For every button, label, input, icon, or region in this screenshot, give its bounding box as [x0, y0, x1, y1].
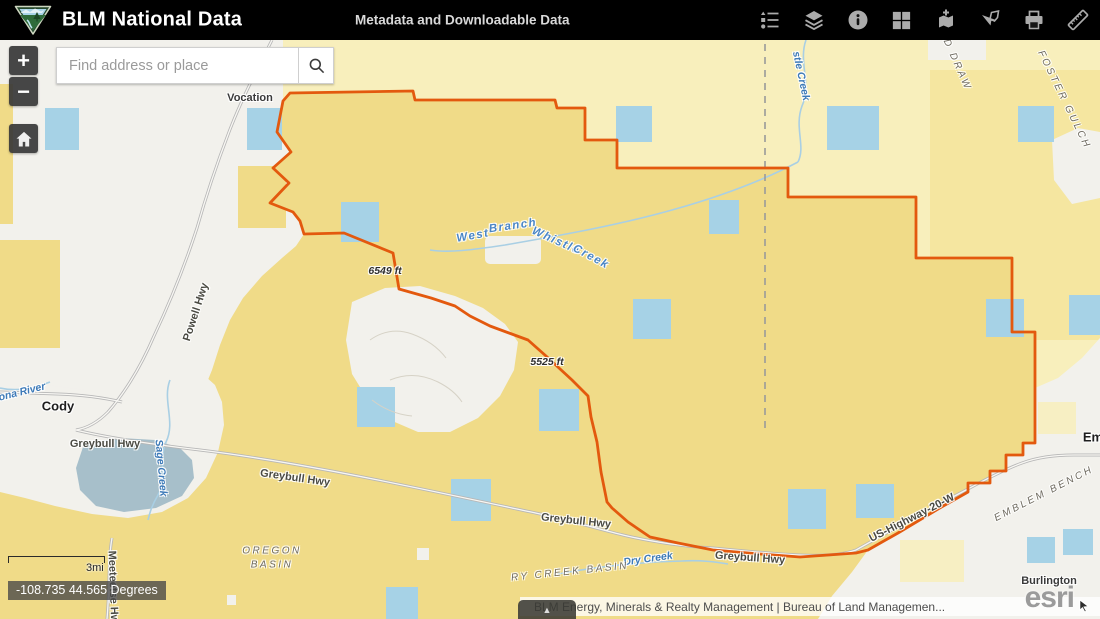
land-parcel-square	[1069, 295, 1100, 335]
land-parcel-square	[1018, 106, 1054, 142]
search-icon	[307, 56, 326, 75]
add-data-icon	[934, 8, 958, 32]
land-parcel-square	[633, 299, 671, 339]
app-header: BLM National Data Metadata and Downloada…	[0, 0, 1100, 40]
land-parcel-square	[616, 106, 652, 142]
land-parcel-square	[1063, 529, 1093, 555]
app-subtitle: Metadata and Downloadable Data	[355, 13, 570, 28]
land-parcel-square	[357, 387, 395, 427]
print-icon	[1022, 8, 1046, 32]
tool-add-data-button[interactable]	[925, 0, 966, 40]
scale-label: 3mi	[86, 562, 104, 574]
tool-layers-button[interactable]	[793, 0, 834, 40]
coordinate-readout: -108.735 44.565 Degrees	[8, 581, 166, 600]
attribution-expander-button[interactable]: ▲	[518, 600, 576, 619]
header-toolbar	[749, 0, 1098, 40]
map-canvas	[0, 40, 1100, 619]
app-title: BLM National Data	[62, 9, 242, 32]
information-icon	[846, 8, 870, 32]
tool-extract-data-button[interactable]	[969, 0, 1010, 40]
esri-logo[interactable]: esri	[1025, 581, 1074, 615]
search-bar	[56, 47, 334, 84]
land-parcel-square	[1027, 537, 1055, 563]
search-input[interactable]	[56, 47, 298, 84]
zoom-in-button[interactable]: +	[9, 46, 38, 75]
land-parcel-square	[709, 200, 739, 234]
land-parcel-square	[856, 484, 894, 518]
basemap-grid-icon	[890, 9, 913, 32]
tool-measure-button[interactable]	[1057, 0, 1098, 40]
map-viewport[interactable]: VocationCodyBurlingtonEm6549 ft5525 ftGr…	[0, 40, 1100, 619]
tool-print-button[interactable]	[1013, 0, 1054, 40]
tool-basemap-grid-button[interactable]	[881, 0, 922, 40]
blm-logo	[13, 3, 53, 42]
extract-data-icon	[978, 8, 1002, 32]
search-button[interactable]	[298, 47, 334, 84]
tool-legend-button[interactable]	[749, 0, 790, 40]
land-parcel-square	[539, 389, 579, 431]
zoom-out-button[interactable]: −	[9, 77, 38, 106]
land-parcel-square	[386, 587, 418, 619]
land-parcel-square	[788, 489, 826, 529]
land-parcel-square	[827, 106, 879, 150]
measure-icon	[1066, 8, 1090, 32]
attribution-bar: BLM Energy, Minerals & Realty Management…	[520, 597, 1100, 616]
layers-icon	[802, 8, 826, 32]
home-button[interactable]	[9, 124, 38, 153]
land-parcel-square	[45, 108, 79, 150]
tool-information-button[interactable]	[837, 0, 878, 40]
legend-icon	[758, 8, 782, 32]
home-icon	[14, 129, 34, 149]
mouse-cursor-icon	[1077, 598, 1092, 618]
attribution-text: BLM Energy, Minerals & Realty Management…	[520, 600, 945, 614]
blm-map-viewer: BLM National Data Metadata and Downloada…	[0, 0, 1100, 619]
land-parcel-square	[341, 202, 379, 242]
